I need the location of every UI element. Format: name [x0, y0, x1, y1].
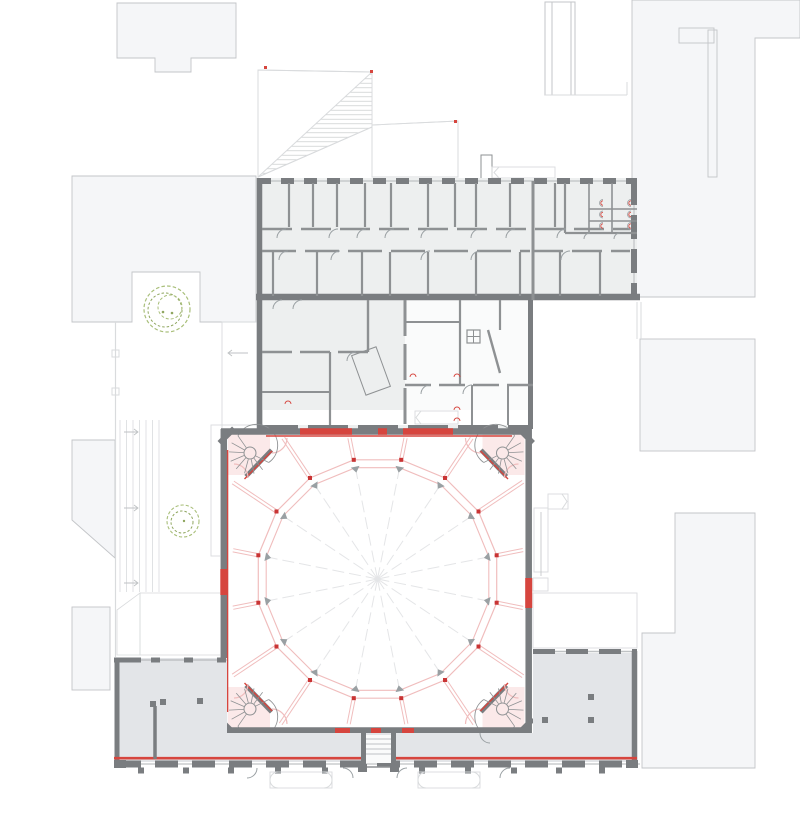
column [160, 699, 166, 705]
arena-node [256, 601, 260, 605]
arena-node [443, 678, 447, 682]
arena-node [477, 509, 481, 513]
arena-node [274, 509, 278, 513]
facade-pier [511, 768, 517, 774]
arena-node [477, 645, 481, 649]
facade-pier [599, 768, 605, 774]
arena-node [495, 553, 499, 557]
roof-hatch-right [372, 120, 458, 177]
courtyard-ramp-hatch [117, 420, 165, 592]
south-wing-floor-right [533, 653, 637, 762]
red-wall-block-west [220, 569, 227, 595]
arena-node [308, 678, 312, 682]
arena-node [352, 458, 356, 462]
arena-node [443, 476, 447, 480]
north-wing-corridor [263, 410, 531, 425]
arena-node [274, 645, 278, 649]
facade-pier [138, 768, 144, 774]
floor-plan-drawing [0, 0, 800, 840]
column [588, 694, 594, 700]
arena-node [352, 696, 356, 700]
context-building-right-mid [640, 339, 755, 451]
red-wall-block-east [525, 578, 532, 608]
column [197, 698, 203, 704]
south-wing-floor-left [118, 658, 227, 762]
arena-node [308, 476, 312, 480]
arena-node [256, 553, 260, 557]
arena-node [495, 601, 499, 605]
facade-pier [183, 768, 189, 774]
facade-pier [228, 768, 234, 774]
arena-node [399, 458, 403, 462]
column [588, 717, 594, 723]
facade-pier [556, 768, 562, 774]
facade-pier [465, 768, 471, 774]
north-wing-rooms-white [405, 300, 533, 410]
column [150, 701, 156, 707]
floor-plan-canvas [0, 0, 800, 840]
column [542, 717, 548, 723]
context-building-left-bottom [72, 607, 110, 690]
arena-node [399, 696, 403, 700]
